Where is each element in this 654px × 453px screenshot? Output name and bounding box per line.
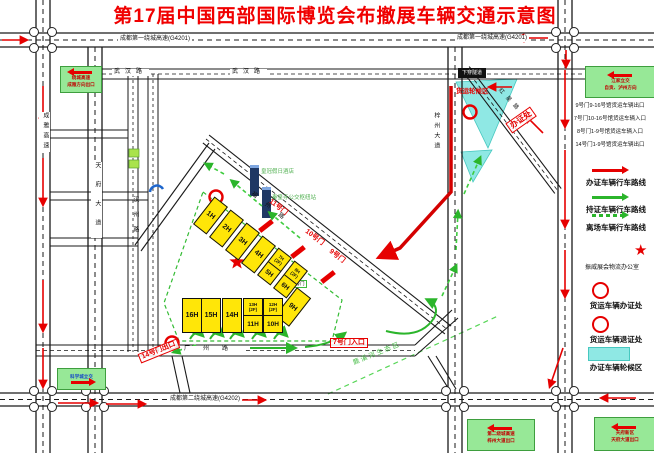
green-arrow-legend-icon (592, 196, 626, 199)
legend-top-box-line2: 自贡、泸州方向 (604, 85, 636, 91)
info-box-top-left-line1: 绕城高速 (72, 75, 90, 81)
red-star-legend-icon: ★ (634, 243, 647, 258)
left-arrow-icon (490, 427, 512, 430)
road-label-zizhou: 梓州大道 (430, 112, 441, 152)
road-label-g4201-right: 成都第一绕城高速(G4201) (455, 35, 529, 42)
info-box-bottom-left: 科学城立交 (57, 368, 106, 390)
hall-15: 15H (201, 298, 221, 333)
legend-note-gate9: 9号门9-16号馆货运车辆出口 (568, 101, 652, 109)
hall-4-label: 4H (253, 249, 264, 260)
hall-2-label: 2H (221, 223, 232, 234)
hall-11-label: 11H (244, 316, 262, 332)
hall-14: 14H (222, 298, 242, 333)
traffic-map: 第17届中国西部国际博览会布撤展车辆交通示意图 成都第一绕城高速(G4201) … (0, 0, 654, 453)
legend-bottom-box-line1: 天府新区 (616, 430, 634, 436)
legend-top-box-line1: 江家立交 (611, 78, 629, 84)
red-circle-legend-icon (592, 316, 609, 333)
info-box-bottom-center: 第二绕城高速 梓州大道出口 (467, 419, 535, 451)
gate-7-entrance-label: 7号门入口 (330, 338, 368, 348)
info-box-bottom-center-line2: 梓州大道出口 (487, 438, 515, 444)
road-label-chengya: 成雅高速 (39, 112, 50, 152)
legend-bottom-box: 天府新区 天府大道出口 (594, 417, 654, 451)
hall-13-label: 13H (2F) (244, 299, 262, 316)
hall-13-11: 13H (2F) 11H (243, 298, 263, 333)
red-circle-legend-icon (592, 282, 609, 299)
legend-pt-wait: 办证车辆轮候区 (576, 362, 654, 373)
road-connector-west (135, 143, 215, 251)
legend-note-gate7: 7号门10-16号馆货运车辆入口 (568, 114, 652, 122)
bus-hub-label: 秦皇寺公交枢纽站 (272, 195, 316, 201)
tunnel-label: 下穿隧道 (458, 68, 486, 78)
hall-3-label: 3H (237, 236, 248, 247)
freight-waiting-zone-label: 货运轮候区 (456, 88, 489, 95)
hall-14-label: 14H (226, 312, 239, 319)
right-arrow-icon (71, 381, 93, 384)
hall-16-label: 16H (186, 312, 199, 319)
hotel-label: 皇冠假日酒店 (261, 169, 294, 175)
hall-15-label: 15H (205, 312, 218, 319)
road-label-wuhan-1: 武汉路 (112, 69, 149, 76)
metro-station-icon (150, 186, 163, 192)
cyan-zone-legend-icon (588, 347, 630, 361)
green-dashed-arrow-legend-icon (592, 214, 626, 217)
hall-12-10: 12H (2F) 10H (263, 298, 283, 333)
hall-16: 16H (182, 298, 202, 333)
hall-10-label: 10H (264, 316, 282, 332)
road-label-tianfu: 天府大道 (91, 162, 102, 238)
legend-route-leave: 离场车辆行车路线 (576, 222, 654, 233)
info-box-top-left-line2: 成雅方向出口 (67, 82, 95, 88)
page-title: 第17届中国西部国际博览会布撤展车辆交通示意图 (100, 6, 570, 28)
legend-pt-return: 货运车辆退证处 (576, 334, 654, 345)
hall-9-label: 9H (287, 301, 298, 312)
legend-route-permit: 办证车辆行车路线 (576, 177, 654, 188)
road-wuhan (95, 69, 654, 79)
legend-pt-office: 货运车辆办证处 (576, 300, 654, 311)
luxi-river-line (328, 316, 498, 394)
road-far-right (558, 0, 572, 453)
road-label-wuhan-2: 武汉路 (230, 69, 267, 76)
legend-bottom-box-line2: 天府大道出口 (611, 437, 639, 443)
hall-12-label: 12H (2F) (264, 299, 282, 316)
red-arrow-legend-icon (592, 169, 626, 172)
info-box-top-left: 绕城高速 成雅方向出口 (60, 66, 102, 93)
left-arrow-icon (70, 71, 92, 74)
legend-note-gate14: 14号门1-9号馆货运车辆出口 (568, 140, 652, 148)
hall-1-label: 1H (205, 210, 216, 221)
road-label-g4202: 成都第二绕城高速(G4202) (168, 396, 242, 403)
left-arrow-icon (614, 426, 636, 429)
left-arrow-icon (610, 74, 632, 77)
road-label-guangzhou: 广州路 (182, 346, 243, 353)
legend-note-gate8: 8号门1-9号馆货运车辆入口 (568, 127, 652, 135)
road-label-g4201-left: 成都第一绕城高速(G4201) (118, 36, 192, 43)
legend-top-box: 江家立交 自贡、泸州方向 (585, 66, 654, 98)
legend-pt-star: 振威展会物流办公室 (570, 262, 654, 271)
road-label-hanzhou: 汉州路 (129, 196, 140, 241)
